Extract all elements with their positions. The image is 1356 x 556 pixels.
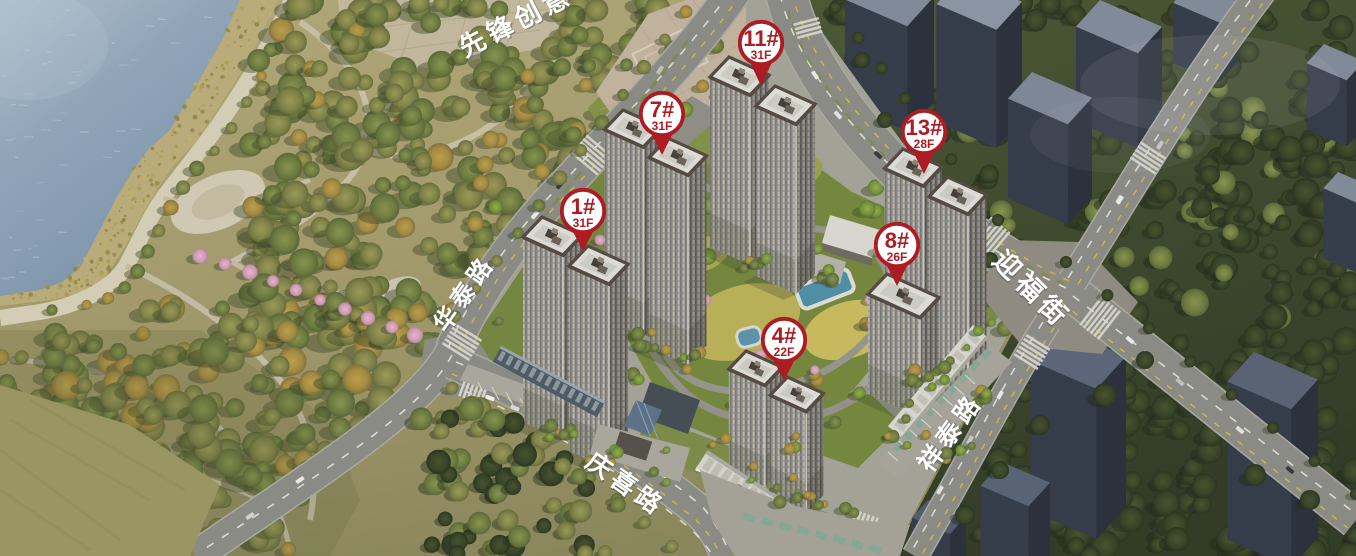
- svg-text:28F: 28F: [914, 137, 935, 151]
- svg-text:22F: 22F: [774, 345, 795, 359]
- svg-text:26F: 26F: [887, 250, 908, 264]
- svg-text:31F: 31F: [751, 48, 772, 62]
- svg-text:31F: 31F: [652, 119, 673, 133]
- svg-text:31F: 31F: [573, 216, 594, 230]
